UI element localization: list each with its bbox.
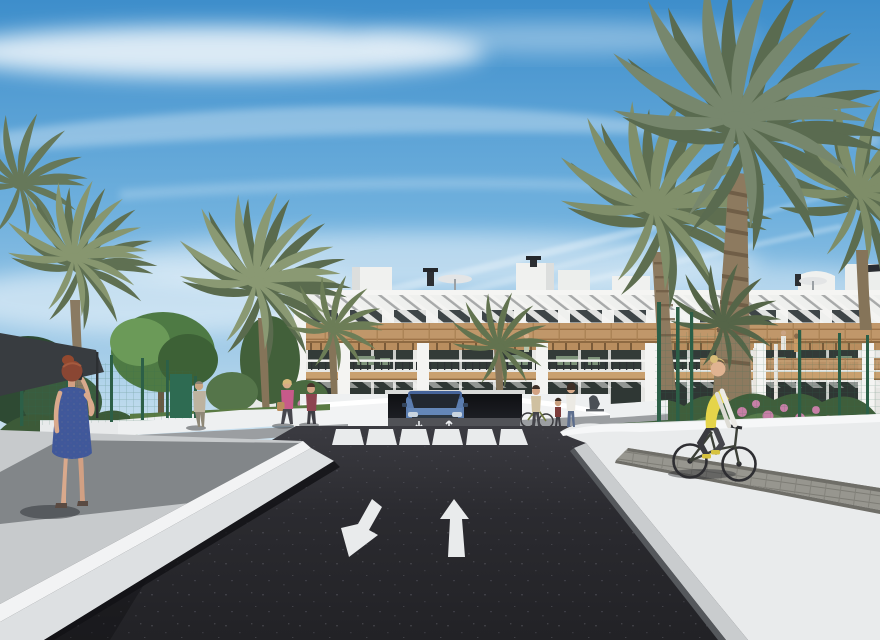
pergola-band	[294, 295, 880, 323]
rendered-scene	[0, 0, 880, 640]
scene-canvas	[0, 0, 880, 640]
